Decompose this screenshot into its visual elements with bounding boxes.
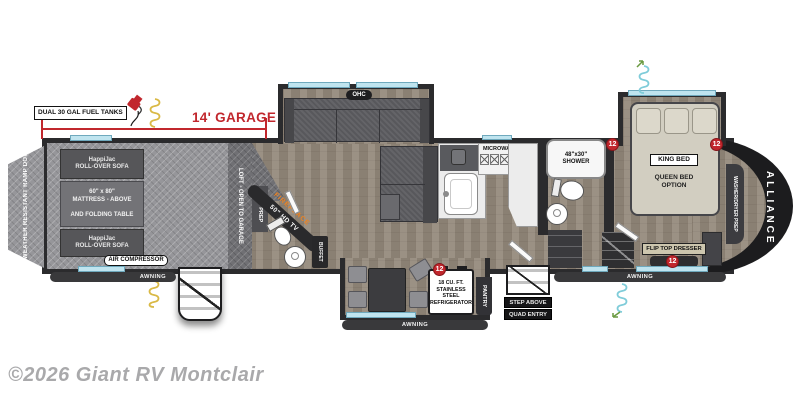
sink-basin xyxy=(450,179,472,209)
air-compressor-label: AIR COMPRESSOR xyxy=(104,255,168,266)
awning-text: AWNING xyxy=(627,274,653,280)
watermark-text: ©2026 Giant RV Montclair xyxy=(8,364,264,386)
brand-logo: ALLIANCE xyxy=(764,162,775,254)
mattress-line1: 60" x 80" xyxy=(89,189,115,195)
garage-rollover-sofa-bottom: HappiJac ROLL-OVER SOFA xyxy=(60,229,144,257)
fridge-line3: REFRIGERATOR xyxy=(430,300,472,306)
kitchen-sink xyxy=(444,173,478,215)
garage-rollover-sofa-top: HappiJac ROLL-OVER SOFA xyxy=(60,149,144,179)
sink-drain xyxy=(553,209,561,217)
dinette-chair xyxy=(348,291,367,308)
mattress-line3: AND FOLDING TABLE xyxy=(71,212,134,218)
dresser-text: FLIP TOP DRESSER xyxy=(646,246,701,252)
garage-entry-steps xyxy=(178,267,222,321)
sectional-sofa xyxy=(284,98,430,142)
washer-dryer-label: WASHER/DRYER PREP xyxy=(732,176,738,232)
buffet-cabinet: BUFFET xyxy=(312,236,328,268)
pantry-label: PANTRY xyxy=(481,285,487,307)
sofa-label-line1: HappiJac xyxy=(89,236,116,242)
sofa-arm-left xyxy=(285,99,294,143)
dimension-line xyxy=(42,128,267,130)
shower-size: 48"x30" xyxy=(565,152,587,158)
dinette-chair xyxy=(348,266,367,283)
shower: 48"x30" SHOWER xyxy=(546,139,606,179)
awning-left: AWNING xyxy=(50,272,176,282)
ohc-label: OHC xyxy=(346,90,372,100)
awning-right: AWNING xyxy=(554,272,726,282)
king-bed-text: KING BED xyxy=(658,156,690,163)
option-marker: 12 xyxy=(666,255,679,268)
option-marker: 12 xyxy=(710,138,723,151)
fridge-line2: STAINLESS STEEL xyxy=(436,287,465,300)
dinette-chair xyxy=(409,291,428,308)
flip-top-dresser-label: FLIP TOP DRESSER xyxy=(642,243,706,255)
shower-text: SHOWER xyxy=(563,159,590,165)
queen-line1: QUEEN BED xyxy=(655,174,694,181)
sofa-cushions xyxy=(294,109,422,143)
fuel-tanks-text: DUAL 30 GAL FUEL TANKS xyxy=(38,109,123,116)
toilet-bowl xyxy=(559,179,586,203)
burner-icon xyxy=(500,154,509,165)
entry-platform xyxy=(506,265,550,295)
queen-option-label: QUEEN BED OPTION xyxy=(646,174,702,190)
ramp-door-label: 8' WEATHER RESISTANT RAMP DOOR xyxy=(23,147,29,266)
king-bed-label: KING BED xyxy=(650,154,698,166)
dinette-table xyxy=(368,268,406,312)
bath-cabinet xyxy=(548,230,582,268)
power-cord-icon xyxy=(148,280,161,308)
bed-pillow xyxy=(664,108,689,134)
awning-text: AWNING xyxy=(402,322,428,328)
entry-label-1: STEP ABOVE xyxy=(504,297,552,308)
cooktop-icon xyxy=(451,149,466,165)
refrigerator: 18 CU. FT. STAINLESS STEEL REFRIGERATOR xyxy=(428,269,474,315)
fuel-tanks-label: DUAL 30 GAL FUEL TANKS xyxy=(34,106,127,120)
dimension-tick-left xyxy=(41,118,43,139)
dinette-window xyxy=(346,312,416,318)
garage-dimension-label: 14' GARAGE xyxy=(192,110,276,125)
fridge-hinge xyxy=(457,266,467,270)
kitchen-window xyxy=(482,135,512,140)
washer-dryer-closet: WASHER/DRYER PREP xyxy=(726,164,744,244)
burner-icon xyxy=(480,154,489,165)
air-compressor-text: AIR COMPRESSOR xyxy=(108,257,163,264)
marker-text: 12 xyxy=(713,141,721,148)
entry-label-line1: STEP ABOVE xyxy=(509,300,546,306)
sofa-slide-window-right xyxy=(356,82,418,88)
bed-pillow xyxy=(636,108,661,134)
bath-sink xyxy=(546,203,568,225)
awning-text: AWNING xyxy=(140,274,166,280)
ohc-text: OHC xyxy=(352,92,365,98)
buffet-label: BUFFET xyxy=(317,242,323,262)
option-marker: 12 xyxy=(606,138,619,151)
pantry: PANTRY xyxy=(476,277,492,315)
bed-pillow xyxy=(692,108,717,134)
ottoman xyxy=(380,194,400,220)
sofa-label-line2: ROLL-OVER SOFA xyxy=(75,164,128,170)
sofa-slide-window-left xyxy=(288,82,350,88)
chaise-divider xyxy=(381,184,425,185)
garage-dimension-text: 14' GARAGE xyxy=(192,110,276,125)
half-bath-sink xyxy=(284,246,306,268)
queen-line2: OPTION xyxy=(662,182,687,189)
loft-label: LOFT - OPEN TO GARAGE xyxy=(237,168,243,244)
chaise-back xyxy=(423,147,437,223)
faucet-icon xyxy=(443,191,449,197)
entry-label-line2: QUAD ENTRY xyxy=(509,312,547,318)
sofa-label-line1: HappiJac xyxy=(89,157,116,163)
option-marker: 12 xyxy=(433,263,446,276)
fuel-pump-icon xyxy=(125,93,149,127)
burner-icon xyxy=(490,154,499,165)
marker-text: 12 xyxy=(609,141,617,148)
water-hose-icon xyxy=(632,60,654,94)
power-cord-icon xyxy=(149,98,162,130)
kitchen-peninsula xyxy=(508,143,538,227)
ramp-door: 8' WEATHER RESISTANT RAMP DOOR xyxy=(8,146,44,268)
sofa-label-line2: ROLL-OVER SOFA xyxy=(75,243,128,249)
awning-center: AWNING xyxy=(342,320,488,330)
mattress-line2: MATTRESS - ABOVE xyxy=(72,197,131,203)
water-hose-icon xyxy=(610,283,632,319)
garage-mattress-area: 60" x 80" MATTRESS - ABOVE AND FOLDING T… xyxy=(60,181,144,227)
garage-window-top xyxy=(70,135,112,141)
sink-drain xyxy=(291,252,299,260)
floorplan-canvas: ALLIANCE 8' WEATHER RESISTANT RAMP DOOR … xyxy=(0,0,800,400)
fridge-line1: 18 CU. FT. xyxy=(438,280,463,286)
watermark: ©2026 Giant RV Montclair xyxy=(8,364,264,387)
marker-text: 12 xyxy=(436,266,444,273)
marker-text: 12 xyxy=(669,258,677,265)
entry-label-2: QUAD ENTRY xyxy=(504,309,552,320)
loft-wall: LOFT - OPEN TO GARAGE xyxy=(228,143,252,269)
